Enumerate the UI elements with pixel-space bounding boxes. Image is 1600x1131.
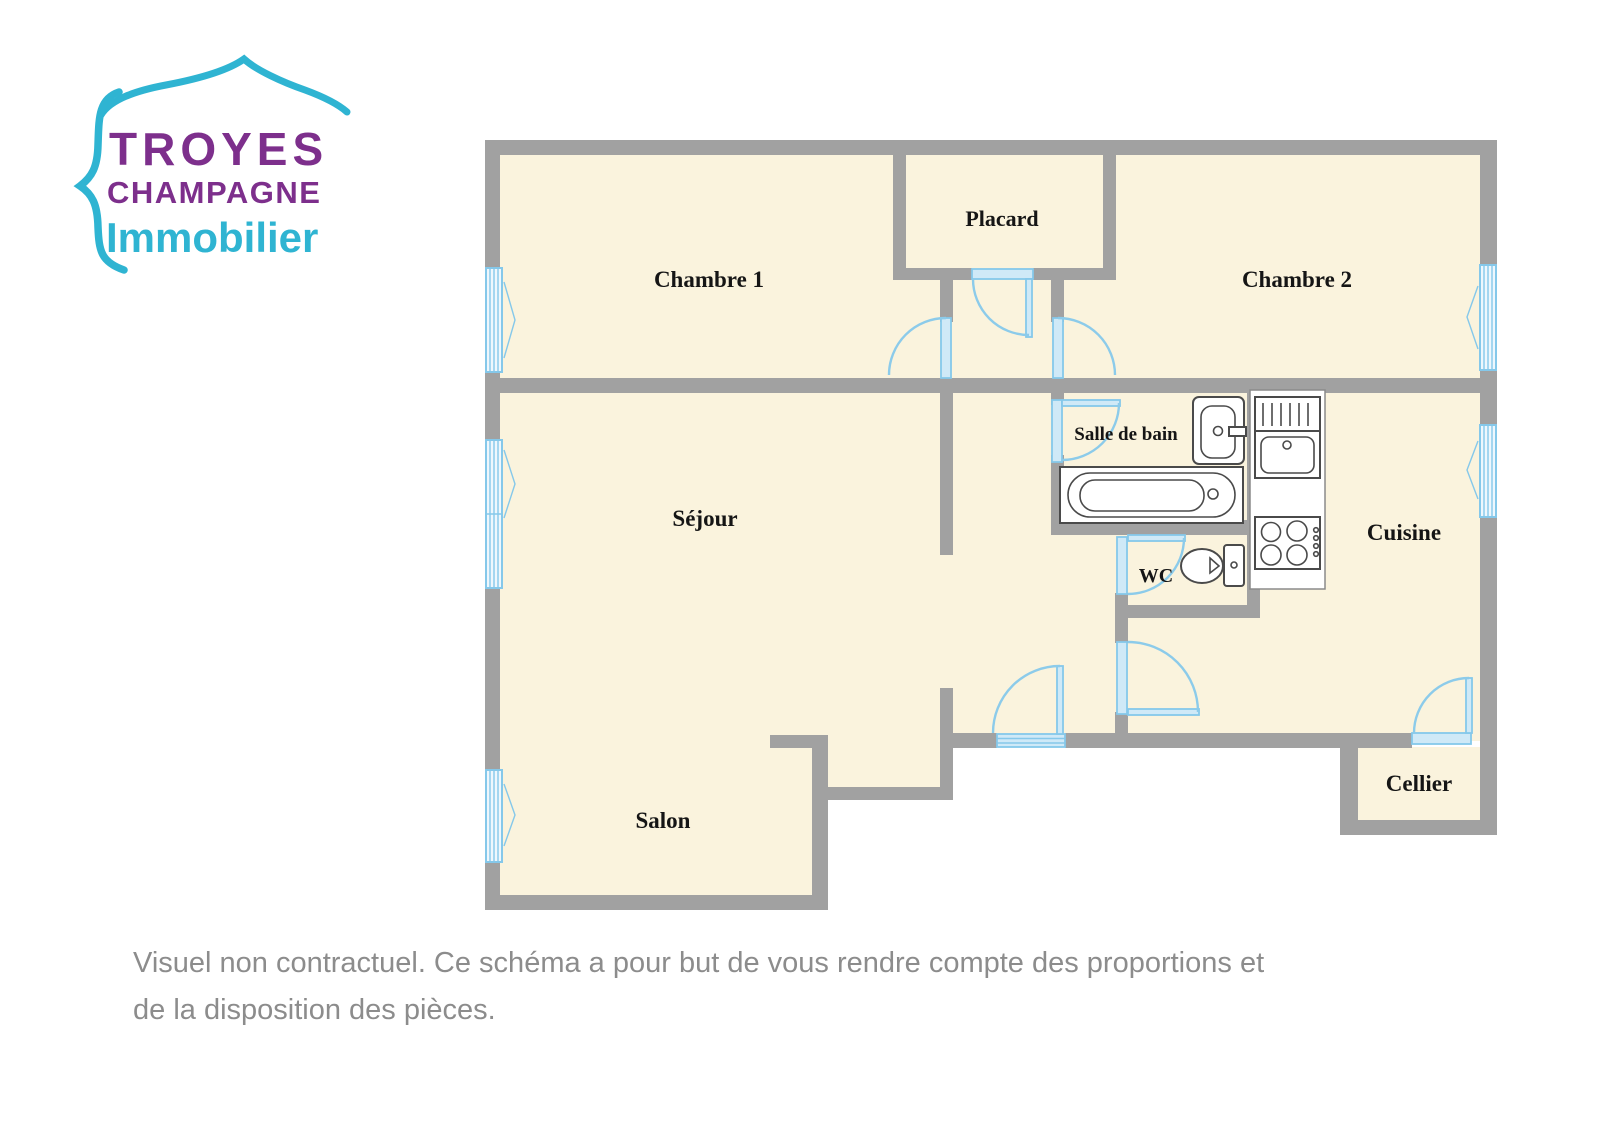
room-label-chambre1: Chambre 1 xyxy=(654,267,764,292)
disclaimer-text: Visuel non contractuel. Ce schéma a pour… xyxy=(133,940,1473,1034)
room-label-salon: Salon xyxy=(636,808,691,833)
wall-segment xyxy=(1051,280,1064,322)
wall-segment xyxy=(485,895,828,910)
disclaimer-line1: Visuel non contractuel. Ce schéma a pour… xyxy=(133,947,1264,979)
bathtub-icon xyxy=(1060,467,1243,523)
room-label-wc: WC xyxy=(1139,565,1173,587)
floor-area xyxy=(492,147,1488,903)
wall-segment xyxy=(485,378,1497,393)
room-label-chambre2: Chambre 2 xyxy=(1242,267,1352,292)
toilet-icon xyxy=(1181,545,1244,586)
room-label-placard: Placard xyxy=(965,206,1038,231)
room-label-sejour: Séjour xyxy=(672,506,737,531)
wall-segment xyxy=(828,787,953,800)
wall-segment xyxy=(1115,712,1128,733)
wall-segment xyxy=(1115,605,1260,618)
wall-segment xyxy=(1103,155,1116,280)
wall-segment xyxy=(940,688,953,800)
wall-segment xyxy=(893,155,906,280)
wall-segment xyxy=(485,140,1497,155)
washbasin-icon xyxy=(1193,397,1246,464)
room-label-cellier: Cellier xyxy=(1386,771,1452,796)
wall-segment xyxy=(1033,268,1116,280)
stove-icon xyxy=(1255,517,1320,569)
wall-segment xyxy=(940,393,953,555)
room-label-cuisine: Cuisine xyxy=(1367,520,1441,545)
wall-segment xyxy=(940,280,953,322)
wall-segment xyxy=(812,742,828,910)
wall-segment xyxy=(770,735,828,748)
wall-segment xyxy=(1065,733,1412,748)
wall-segment xyxy=(893,268,972,280)
wall-segment xyxy=(1115,618,1128,643)
disclaimer-line2: de la disposition des pièces. xyxy=(133,994,496,1026)
room-label-salle-de-bain: Salle de bain xyxy=(1074,424,1178,445)
wall-segment xyxy=(1340,820,1497,835)
kitchen-counter xyxy=(1250,390,1325,589)
